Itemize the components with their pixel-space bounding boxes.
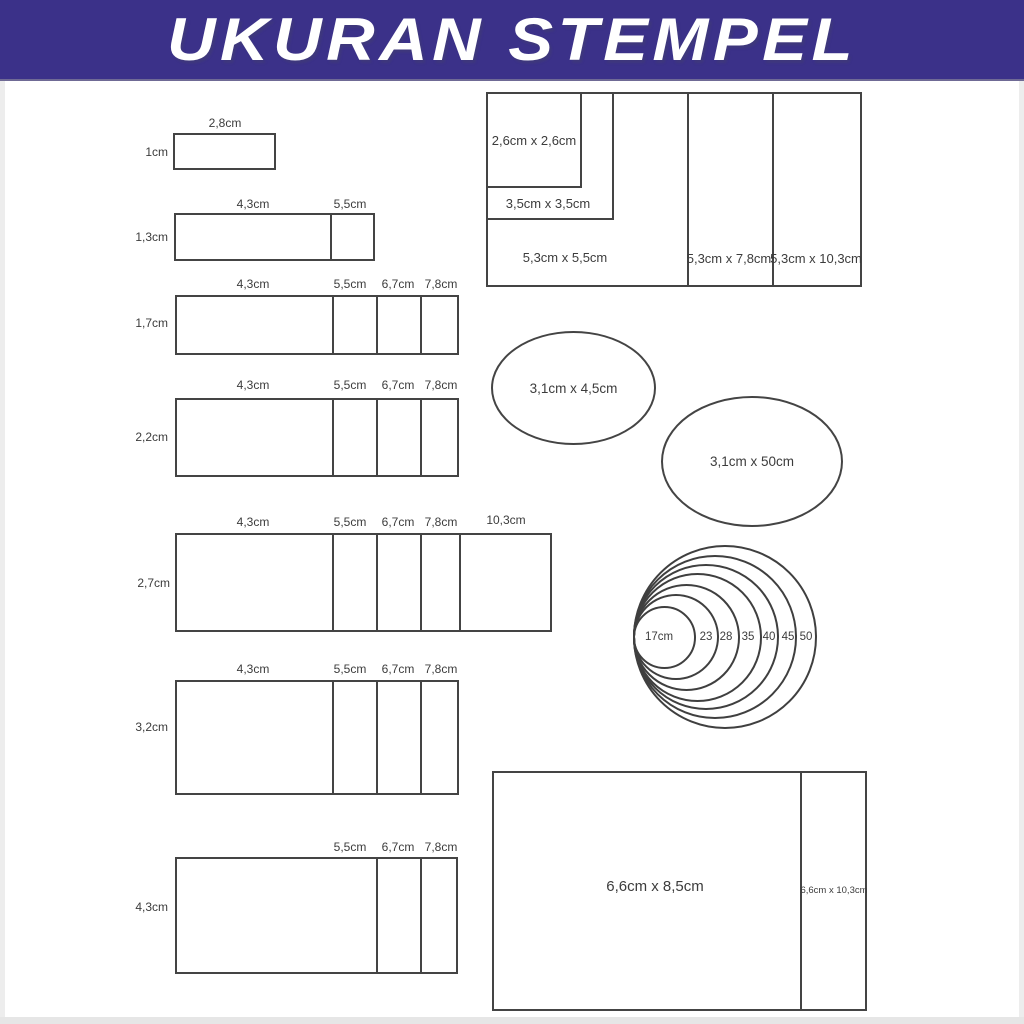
bottom-rect-main-label: 6,6cm x 8,5cm xyxy=(606,880,704,894)
divider-line xyxy=(459,533,461,632)
square-label: 5,3cm x 7,8cm xyxy=(687,252,772,266)
stamp-rect-2-7cm xyxy=(175,533,552,632)
stamp-rect-1cm xyxy=(173,133,276,170)
height-label: 1,7cm xyxy=(135,316,168,330)
width-label: 4,3cm xyxy=(237,378,270,392)
frame-left xyxy=(0,81,5,1024)
frame-right xyxy=(1019,81,1024,1024)
height-label: 3,2cm xyxy=(135,720,168,734)
width-label: 5,5cm xyxy=(334,662,367,676)
divider-line xyxy=(376,680,378,795)
stamp-rect-3-2cm xyxy=(175,680,459,795)
stamp-rect-2-2cm xyxy=(175,398,459,477)
page-title: UKURAN STEMPEL xyxy=(167,5,857,74)
bottom-rect-side-label: 6,6cm x 10,3cm xyxy=(800,884,867,898)
ellipse-3-1x4-5: 3,1cm x 4,5cm xyxy=(491,331,656,445)
width-label: 5,5cm xyxy=(334,378,367,392)
height-label: 4,3cm xyxy=(135,900,168,914)
divider-line xyxy=(420,857,422,974)
width-label: 7,8cm xyxy=(425,277,458,291)
poster: UKURAN STEMPEL 2,8cm 1cm 4,3cm 5,5cm 1,3… xyxy=(0,0,1024,1024)
ellipse-label: 3,1cm x 4,5cm xyxy=(530,381,618,396)
divider-line xyxy=(332,398,334,477)
divider-line xyxy=(420,295,422,355)
width-label: 2,8cm xyxy=(209,116,242,130)
width-label: 4,3cm xyxy=(237,197,270,211)
stamp-rect-1-3cm xyxy=(174,213,375,261)
circle-label: 50 xyxy=(800,630,813,644)
square-label: 5,3cm x 5,5cm xyxy=(523,251,608,265)
stamp-rect-1-7cm xyxy=(175,295,459,355)
width-label: 6,7cm xyxy=(382,662,415,676)
header-banner: UKURAN STEMPEL xyxy=(0,0,1024,81)
stamp-rect-4-3cm xyxy=(175,857,458,974)
circle-label: 45 xyxy=(782,630,795,644)
divider-line xyxy=(330,213,332,261)
square-label: 3,5cm x 3,5cm xyxy=(506,197,591,211)
circle-label: 40 xyxy=(763,630,776,644)
circle-label: 23 xyxy=(700,630,713,644)
width-label: 4,3cm xyxy=(237,662,270,676)
height-label: 1,3cm xyxy=(135,230,168,244)
width-label: 5,5cm xyxy=(334,840,367,854)
width-label: 6,7cm xyxy=(382,378,415,392)
square-label: 2,6cm x 2,6cm xyxy=(492,134,577,148)
width-label: 7,8cm xyxy=(425,662,458,676)
divider-line xyxy=(420,533,422,632)
height-label: 2,7cm xyxy=(137,576,170,590)
width-label: 7,8cm xyxy=(425,515,458,529)
divider-line xyxy=(332,680,334,795)
width-label: 4,3cm xyxy=(237,515,270,529)
divider-line xyxy=(376,295,378,355)
width-label: 10,3cm xyxy=(486,513,525,527)
height-label: 1cm xyxy=(145,145,168,159)
width-label: 5,5cm xyxy=(334,277,367,291)
square-label: 5,3cm x 10,3cm xyxy=(770,252,862,266)
divider-line xyxy=(376,398,378,477)
width-label: 4,3cm xyxy=(237,277,270,291)
width-label: 7,8cm xyxy=(425,840,458,854)
divider-line xyxy=(376,857,378,974)
frame-bottom xyxy=(0,1017,1024,1024)
width-label: 6,7cm xyxy=(382,840,415,854)
circle-label: 28 xyxy=(720,630,733,644)
ellipse-label: 3,1cm x 50cm xyxy=(710,454,794,469)
height-label: 2,2cm xyxy=(135,430,168,444)
width-label: 6,7cm xyxy=(382,515,415,529)
divider-line xyxy=(332,533,334,632)
width-label: 7,8cm xyxy=(425,378,458,392)
divider-line xyxy=(332,295,334,355)
ellipse-3-1x50: 3,1cm x 50cm xyxy=(661,396,843,527)
divider-line xyxy=(420,680,422,795)
circle-label: 17cm xyxy=(645,630,673,644)
circle-label: 35 xyxy=(742,630,755,644)
width-label: 5,5cm xyxy=(334,515,367,529)
width-label: 6,7cm xyxy=(382,277,415,291)
divider-line xyxy=(376,533,378,632)
width-label: 5,5cm xyxy=(334,197,367,211)
divider-line xyxy=(420,398,422,477)
